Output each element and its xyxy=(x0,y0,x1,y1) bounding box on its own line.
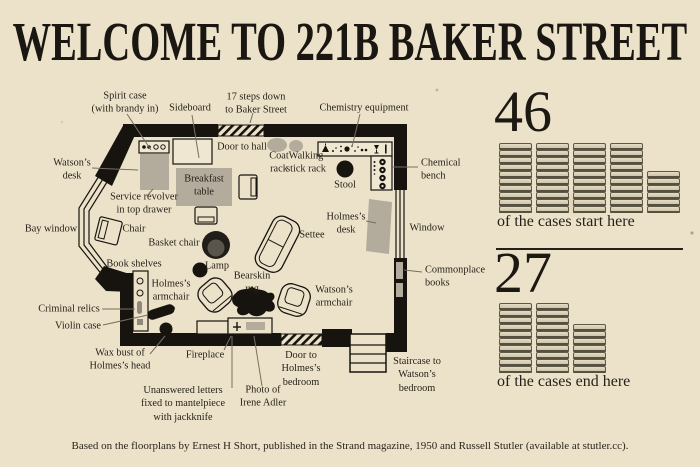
book-layer xyxy=(647,199,680,206)
book-layer xyxy=(573,366,606,373)
label-wax-bust: Wax bust of Holmes’s head xyxy=(90,347,151,374)
sideboard-shape xyxy=(173,139,212,164)
cases-end-number: 27 xyxy=(494,244,552,302)
right-window-glazing xyxy=(396,190,404,258)
book-layer xyxy=(536,171,569,178)
book-layer xyxy=(573,199,606,206)
cases-end-caption: of the cases end here xyxy=(497,373,630,391)
basket-chair-shape xyxy=(202,231,230,259)
holmes-armchair-shape xyxy=(194,274,236,316)
book-layer xyxy=(499,331,532,338)
book-layer xyxy=(536,324,569,331)
wall-corner-se xyxy=(386,333,407,352)
dining-chair-bottom-shape xyxy=(195,207,217,224)
book-layer xyxy=(499,345,532,352)
watsons-armchair-shape xyxy=(275,281,313,319)
book-stack xyxy=(610,143,643,213)
cases-start-number: 46 xyxy=(494,83,552,141)
label-sideboard: Sideboard xyxy=(169,101,211,114)
label-watsons-armchair: Watson’s armchair xyxy=(315,284,353,311)
chemistry-equipment-shape xyxy=(318,142,392,156)
book-layer xyxy=(610,157,643,164)
book-layer xyxy=(536,338,569,345)
book-layer xyxy=(610,164,643,171)
label-fireplace: Fireplace xyxy=(186,348,224,361)
book-layer xyxy=(573,206,606,213)
label-photo-of-irene-adler: Photo of Irene Adler xyxy=(240,384,287,411)
book-layer xyxy=(610,192,643,199)
book-layer xyxy=(499,143,532,150)
label-steps-to-baker-street: 17 steps down to Baker Street xyxy=(225,91,287,118)
book-layer xyxy=(573,324,606,331)
label-settee: Settee xyxy=(299,228,324,241)
credit-line: Based on the floorplans by Ernest H Shor… xyxy=(0,440,700,452)
book-layer xyxy=(647,171,680,178)
wall-top-left xyxy=(123,124,218,137)
book-layer xyxy=(610,199,643,206)
label-bay-window: Bay window xyxy=(25,222,77,235)
book-stack xyxy=(647,171,680,213)
book-layer xyxy=(536,157,569,164)
label-lamp: Lamp xyxy=(205,259,229,272)
bay-chair-shape xyxy=(94,216,122,245)
label-door-to-hall: Door to hall xyxy=(217,140,267,153)
book-layer xyxy=(573,143,606,150)
wall-bottom-right-stub xyxy=(322,329,352,347)
label-unanswered-letters: Unanswered letters fixed to mantelpiece … xyxy=(141,384,225,424)
page-title: WELCOME TO 221B BAKER STREET xyxy=(13,14,688,69)
label-door-to-holmes-bedroom: Door to Holmes’s bedroom xyxy=(282,349,321,389)
book-layer xyxy=(536,150,569,157)
chemical-bench-shape xyxy=(371,156,392,190)
label-holmes-armchair: Holmes’s armchair xyxy=(152,278,191,305)
label-chemical-bench: Chemical bench xyxy=(421,157,460,184)
book-layer xyxy=(573,192,606,199)
book-stack xyxy=(499,303,532,373)
book-layer xyxy=(536,164,569,171)
label-spirit-case: Spirit case (with brandy in) xyxy=(92,90,159,117)
book-layer xyxy=(499,178,532,185)
book-layer xyxy=(610,178,643,185)
book-layer xyxy=(647,178,680,185)
label-chemistry-equipment: Chemistry equipment xyxy=(320,101,409,114)
book-layer xyxy=(536,199,569,206)
book-layer xyxy=(573,345,606,352)
spirit-case-shape xyxy=(139,141,169,153)
book-layer xyxy=(499,150,532,157)
book-layer xyxy=(536,185,569,192)
book-layer xyxy=(573,157,606,164)
wall-right-upper xyxy=(394,124,407,190)
book-layer xyxy=(499,359,532,366)
staircase-shape xyxy=(350,334,386,372)
book-layer xyxy=(499,338,532,345)
book-layer xyxy=(573,150,606,157)
book-layer xyxy=(499,303,532,310)
book-layer xyxy=(573,352,606,359)
label-bearskin-rug: Bearskin rug xyxy=(234,270,271,297)
book-layer xyxy=(536,206,569,213)
label-commonplace-books: Commonplace books xyxy=(425,264,485,291)
book-layer xyxy=(573,164,606,171)
book-layer xyxy=(536,345,569,352)
book-layer xyxy=(499,317,532,324)
book-stack xyxy=(499,143,532,213)
label-watsons-desk: Watson’s desk xyxy=(53,157,91,184)
book-layer xyxy=(536,317,569,324)
stool-shape xyxy=(337,161,354,178)
label-breakfast-table: Breakfast table xyxy=(184,173,223,200)
label-book-shelves: Book shelves xyxy=(106,257,161,270)
title-wrap: WELCOME TO 221B BAKER STREET xyxy=(0,14,700,69)
book-layer xyxy=(499,157,532,164)
fireplace-shape xyxy=(197,318,272,334)
book-shelves-shape xyxy=(133,271,148,331)
settee-shape xyxy=(252,213,303,276)
book-layer xyxy=(536,178,569,185)
book-layer xyxy=(647,185,680,192)
book-stack xyxy=(536,143,569,213)
dining-chair-right-shape xyxy=(239,175,257,199)
book-layer xyxy=(536,310,569,317)
label-violin-case: Violin case xyxy=(55,319,101,332)
label-chair: Chair xyxy=(123,222,146,235)
watsons-desk-shape xyxy=(140,154,169,190)
book-layer xyxy=(499,185,532,192)
label-basket-chair: Basket chair xyxy=(148,236,199,249)
book-layer xyxy=(499,366,532,373)
book-layer xyxy=(573,338,606,345)
book-layer xyxy=(573,359,606,366)
label-window: Window xyxy=(409,221,444,234)
book-layer xyxy=(536,352,569,359)
book-layer xyxy=(573,178,606,185)
book-layer xyxy=(610,185,643,192)
book-layer xyxy=(499,310,532,317)
label-stool: Stool xyxy=(334,178,356,191)
book-layer xyxy=(499,199,532,206)
book-layer xyxy=(610,206,643,213)
door-to-holmes-bedroom-opening xyxy=(281,334,322,345)
book-layer xyxy=(536,143,569,150)
book-layer xyxy=(647,192,680,199)
case-stacks xyxy=(499,143,680,213)
holmes-desk-shape xyxy=(366,199,392,254)
infographic-page: Spirit case (with brandy in)Sideboard17 … xyxy=(0,0,700,467)
book-layer xyxy=(536,192,569,199)
book-layer xyxy=(610,171,643,178)
book-layer xyxy=(499,164,532,171)
book-layer xyxy=(610,143,643,150)
book-layer xyxy=(499,206,532,213)
book-layer xyxy=(499,352,532,359)
book-layer xyxy=(499,324,532,331)
book-stack xyxy=(573,143,606,213)
book-layer xyxy=(536,359,569,366)
case-stacks xyxy=(499,303,606,373)
wall-bottom xyxy=(120,333,281,346)
door-to-hall-opening xyxy=(218,125,264,136)
book-layer xyxy=(536,331,569,338)
book-layer xyxy=(573,185,606,192)
label-holmes-desk: Holmes’s desk xyxy=(327,211,366,238)
book-layer xyxy=(573,331,606,338)
label-service-revolver: Service revolver in top drawer xyxy=(110,191,178,218)
wax-bust-shape xyxy=(160,323,173,336)
violin-case-shape xyxy=(146,303,176,321)
label-criminal-relics: Criminal relics xyxy=(38,302,99,315)
book-stack xyxy=(536,303,569,373)
book-layer xyxy=(610,150,643,157)
photo-of-irene-adler-shape xyxy=(246,322,265,330)
label-staircase: Staircase to Watson’s bedroom xyxy=(393,355,441,395)
book-layer xyxy=(499,171,532,178)
book-layer xyxy=(536,303,569,310)
book-stack xyxy=(573,324,606,373)
label-walking-stick-rack: Walking stick rack xyxy=(286,150,326,177)
book-layer xyxy=(499,192,532,199)
book-layer xyxy=(573,171,606,178)
book-layer xyxy=(536,366,569,373)
book-layer xyxy=(647,206,680,213)
cases-start-caption: of the cases start here xyxy=(497,213,635,231)
wall-top-right xyxy=(264,124,407,137)
